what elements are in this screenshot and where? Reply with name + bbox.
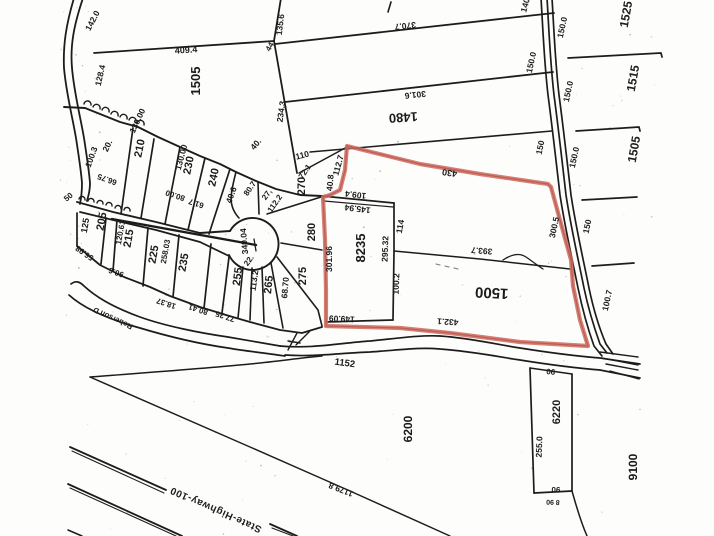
svg-text:280: 280	[306, 223, 318, 241]
svg-text:8235: 8235	[353, 234, 368, 263]
svg-text:275: 275	[297, 267, 309, 285]
svg-text:40.8: 40.8	[324, 174, 335, 192]
svg-text:90: 90	[551, 485, 561, 494]
svg-text:255: 255	[231, 267, 245, 287]
svg-text:255.0: 255.0	[534, 436, 545, 458]
svg-text:68.70: 68.70	[279, 276, 291, 298]
svg-text:270: 270	[296, 177, 308, 195]
svg-text:295.32: 295.32	[380, 235, 391, 262]
svg-text:8 90: 8 90	[546, 498, 560, 505]
svg-text:430: 430	[441, 167, 457, 179]
svg-text:301.96: 301.96	[324, 246, 334, 272]
svg-text:1500: 1500	[475, 283, 509, 302]
svg-text:409.4: 409.4	[174, 44, 197, 56]
svg-text:6220: 6220	[551, 400, 563, 424]
svg-text:100.2: 100.2	[391, 273, 402, 295]
svg-text:9100: 9100	[626, 453, 640, 480]
svg-text:6200: 6200	[401, 415, 415, 442]
svg-text:90: 90	[545, 367, 555, 377]
svg-text:1505: 1505	[188, 67, 203, 96]
svg-text:393.7: 393.7	[470, 245, 492, 257]
svg-text:149.09: 149.09	[328, 313, 355, 324]
svg-text:432.1: 432.1	[437, 316, 459, 327]
svg-text:1480: 1480	[388, 109, 418, 126]
svg-text:265: 265	[262, 275, 276, 295]
